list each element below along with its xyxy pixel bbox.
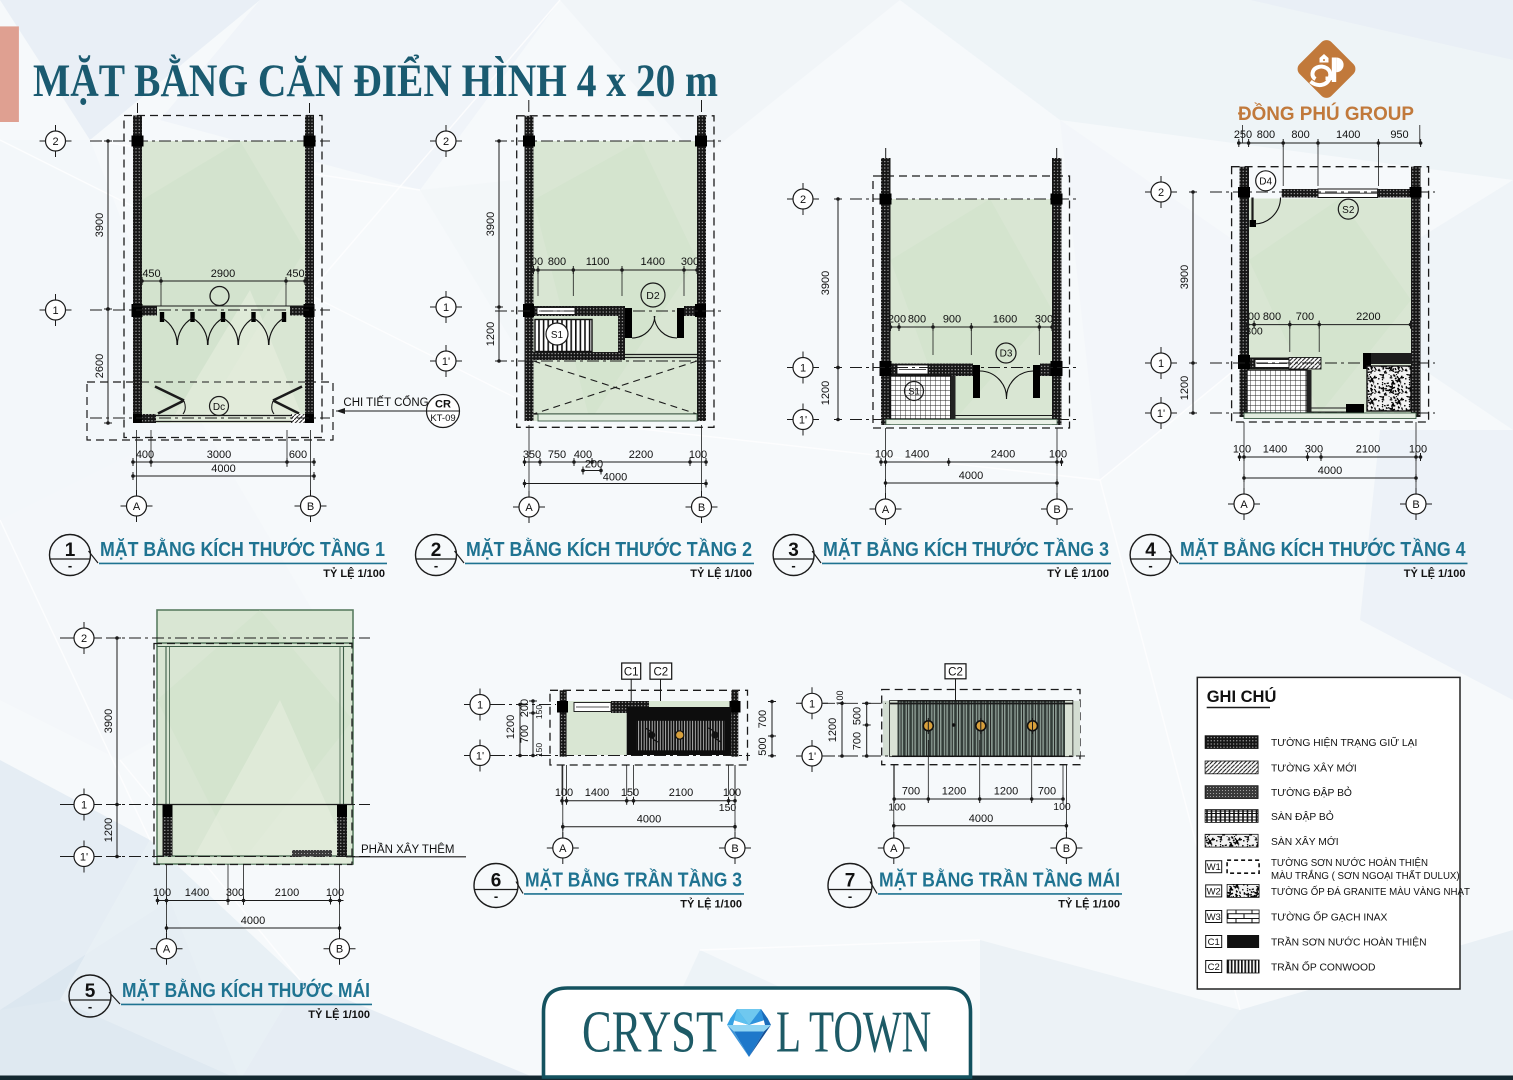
svg-text:700: 700 (1038, 786, 1056, 798)
svg-text:300: 300 (1245, 326, 1263, 338)
svg-text:MẶT BẰNG KÍCH THƯỚC TẦNG 4: MẶT BẰNG KÍCH THƯỚC TẦNG 4 (1180, 537, 1466, 561)
svg-text:4000: 4000 (959, 470, 983, 482)
svg-text:1600: 1600 (993, 314, 1017, 326)
svg-text:350: 350 (523, 449, 541, 461)
svg-text:TƯỜNG HIỆN TRẠNG GIỮ LẠI: TƯỜNG HIỆN TRẠNG GIỮ LẠI (1271, 736, 1417, 749)
svg-text:1200: 1200 (942, 786, 966, 798)
svg-text:-: - (791, 558, 795, 573)
svg-text:A: A (882, 504, 890, 516)
svg-text:MÀU TRẮNG ( SƠN NGOẠI THẤT DUL: MÀU TRẮNG ( SƠN NGOẠI THẤT DULUX) (1271, 871, 1460, 882)
svg-text:TỶ LỆ 1/100: TỶ LỆ 1/100 (1047, 567, 1109, 580)
svg-text:-: - (68, 558, 72, 573)
svg-text:1400: 1400 (585, 787, 609, 799)
svg-text:100: 100 (835, 690, 845, 705)
svg-text:GHI CHÚ: GHI CHÚ (1207, 687, 1277, 706)
svg-text:800: 800 (908, 314, 926, 326)
svg-text:W1: W1 (1207, 862, 1221, 873)
svg-text:4000: 4000 (1318, 465, 1342, 477)
svg-text:1': 1' (799, 414, 807, 426)
svg-text:CR: CR (435, 399, 451, 411)
svg-text:1: 1 (1158, 358, 1164, 370)
svg-text:1200: 1200 (827, 718, 839, 742)
svg-text:2400: 2400 (991, 449, 1015, 461)
svg-text:200: 200 (585, 459, 603, 471)
svg-text:TƯỜNG ĐẬP BỎ: TƯỜNG ĐẬP BỎ (1271, 786, 1352, 799)
svg-text:C1: C1 (624, 667, 639, 679)
svg-text:500: 500 (852, 707, 864, 725)
svg-text:4000: 4000 (241, 915, 265, 927)
svg-text:2900: 2900 (211, 268, 235, 280)
svg-text:500: 500 (757, 737, 769, 755)
svg-text:1': 1' (808, 751, 816, 763)
svg-text:4000: 4000 (637, 814, 661, 826)
svg-text:CRYST: CRYST (582, 1000, 723, 1065)
svg-text:TƯỜNG ỐP GẠCH INAX: TƯỜNG ỐP GẠCH INAX (1271, 910, 1388, 924)
svg-text:1: 1 (800, 362, 806, 374)
svg-text:1400: 1400 (641, 256, 665, 268)
svg-text:200: 200 (519, 699, 531, 717)
svg-text:1100: 1100 (586, 256, 610, 268)
svg-text:1200: 1200 (485, 322, 497, 346)
svg-text:1400: 1400 (185, 887, 209, 899)
svg-text:3900: 3900 (94, 213, 106, 237)
svg-text:TỶ LỆ 1/100: TỶ LỆ 1/100 (1058, 898, 1120, 911)
svg-text:1400: 1400 (1263, 444, 1287, 456)
svg-text:1: 1 (477, 699, 483, 711)
svg-text:B: B (1412, 499, 1419, 511)
svg-text:1200: 1200 (1179, 376, 1191, 400)
svg-text:C2: C2 (948, 667, 963, 679)
svg-text:3900: 3900 (103, 709, 115, 733)
svg-text:PHẦN XÂY THÊM: PHẦN XÂY THÊM (361, 843, 455, 856)
svg-text:100: 100 (723, 787, 741, 799)
svg-text:TRẦN SƠN NƯỚC HOÀN THIỆN: TRẦN SƠN NƯỚC HOÀN THIỆN (1271, 936, 1427, 949)
svg-text:100: 100 (1409, 444, 1427, 456)
svg-text:1400: 1400 (1336, 129, 1360, 141)
svg-text:C1: C1 (1208, 937, 1220, 948)
svg-text:MẶT BẰNG KÍCH THƯỚC TẦNG 1: MẶT BẰNG KÍCH THƯỚC TẦNG 1 (100, 537, 385, 561)
svg-text:TỶ LỆ 1/100: TỶ LỆ 1/100 (680, 898, 742, 911)
svg-text:D4: D4 (1259, 177, 1272, 188)
svg-text:MẶT BẰNG KÍCH THƯỚC TẦNG 2: MẶT BẰNG KÍCH THƯỚC TẦNG 2 (466, 537, 752, 561)
svg-text:MẶT BẰNG KÍCH THƯỚC MÁI: MẶT BẰNG KÍCH THƯỚC MÁI (122, 978, 370, 1002)
svg-text:D2: D2 (646, 290, 660, 302)
svg-text:700: 700 (852, 732, 864, 750)
svg-text:1200: 1200 (994, 786, 1018, 798)
svg-text:A: A (525, 502, 533, 514)
svg-text:B: B (698, 502, 705, 514)
svg-text:300: 300 (1035, 314, 1053, 326)
svg-text:600: 600 (289, 449, 307, 461)
svg-text:100: 100 (326, 887, 344, 899)
svg-text:MẶT BẰNG TRẦN TẦNG 3: MẶT BẰNG TRẦN TẦNG 3 (525, 868, 742, 892)
svg-text:2100: 2100 (1356, 444, 1380, 456)
svg-text:150: 150 (621, 787, 639, 799)
svg-text:100: 100 (153, 887, 171, 899)
svg-text:C2: C2 (1208, 962, 1220, 973)
svg-text:SÀN XÂY MỚI: SÀN XÂY MỚI (1271, 835, 1339, 848)
svg-text:2: 2 (443, 136, 449, 148)
svg-text:2: 2 (81, 633, 87, 645)
svg-text:400: 400 (136, 449, 154, 461)
svg-text:C2: C2 (653, 667, 668, 679)
svg-text:2: 2 (800, 194, 806, 206)
svg-text:TỶ LỆ 1/100: TỶ LỆ 1/100 (1404, 567, 1466, 580)
svg-text:TRẦN ỐP CONWOOD: TRẦN ỐP CONWOOD (1271, 960, 1376, 974)
svg-text:MẶT BẰNG KÍCH THƯỚC TẦNG 3: MẶT BẰNG KÍCH THƯỚC TẦNG 3 (823, 537, 1109, 561)
svg-text:700: 700 (902, 786, 920, 798)
svg-text:100: 100 (1242, 311, 1260, 323)
svg-text:MẶT BẰNG CĂN ĐIỂN HÌNH 4 x 20: MẶT BẰNG CĂN ĐIỂN HÌNH 4 x 20 m (33, 54, 718, 107)
svg-text:-: - (1148, 558, 1152, 573)
svg-text:A: A (1240, 499, 1248, 511)
svg-text:W2: W2 (1207, 886, 1221, 897)
svg-text:B: B (307, 501, 314, 513)
svg-text:3900: 3900 (820, 271, 832, 295)
svg-text:100: 100 (888, 802, 906, 814)
svg-text:1: 1 (809, 698, 815, 710)
svg-text:A: A (559, 843, 567, 855)
svg-text:200: 200 (888, 314, 906, 326)
svg-text:TỶ LỆ 1/100: TỶ LỆ 1/100 (323, 567, 385, 580)
svg-text:1': 1' (476, 750, 484, 762)
svg-text:300: 300 (1305, 444, 1323, 456)
svg-text:450: 450 (286, 268, 304, 280)
svg-text:S2: S2 (1342, 205, 1355, 216)
svg-text:300: 300 (226, 887, 244, 899)
svg-text:2600: 2600 (94, 354, 106, 378)
svg-text:S1: S1 (908, 387, 920, 398)
svg-text:250: 250 (1234, 129, 1252, 141)
svg-text:700: 700 (519, 725, 531, 743)
svg-text:1': 1' (80, 851, 88, 863)
svg-text:3000: 3000 (207, 449, 231, 461)
svg-text:SÀN ĐẬP BỎ: SÀN ĐẬP BỎ (1271, 810, 1334, 823)
svg-text:750: 750 (548, 449, 566, 461)
svg-text:2200: 2200 (1356, 311, 1380, 323)
svg-text:TỶ LỆ 1/100: TỶ LỆ 1/100 (690, 567, 752, 580)
svg-text:1: 1 (52, 305, 58, 317)
svg-text:700: 700 (1296, 311, 1314, 323)
svg-text:A: A (890, 843, 898, 855)
svg-text:150: 150 (719, 802, 737, 814)
svg-text:L TOWN: L TOWN (776, 1000, 931, 1065)
svg-text:2: 2 (52, 136, 58, 148)
svg-text:1200: 1200 (820, 381, 832, 405)
svg-text:900: 900 (943, 314, 961, 326)
svg-text:3900: 3900 (485, 212, 497, 236)
svg-text:A: A (163, 944, 171, 956)
svg-text:Dc: Dc (213, 402, 225, 413)
svg-text:-: - (494, 889, 498, 904)
svg-text:TỶ LỆ 1/100: TỶ LỆ 1/100 (308, 1008, 370, 1021)
svg-text:4000: 4000 (211, 463, 235, 475)
svg-text:MẶT BẰNG TRẦN TẦNG MÁI: MẶT BẰNG TRẦN TẦNG MÁI (879, 868, 1120, 892)
svg-text:1': 1' (442, 356, 450, 368)
svg-text:B: B (1063, 843, 1070, 855)
svg-text:-: - (434, 558, 438, 573)
svg-text:800: 800 (1291, 129, 1309, 141)
svg-text:800: 800 (1257, 129, 1275, 141)
svg-text:-: - (88, 999, 92, 1014)
svg-text:1: 1 (81, 799, 87, 811)
svg-text:800: 800 (1263, 311, 1281, 323)
svg-text:300: 300 (681, 256, 699, 268)
svg-text:B: B (336, 944, 343, 956)
svg-text:B: B (1053, 504, 1060, 516)
svg-text:150: 150 (534, 705, 544, 719)
svg-text:CHI TIẾT CỔNG: CHI TIẾT CỔNG (343, 396, 428, 409)
svg-text:2100: 2100 (275, 887, 299, 899)
svg-text:TƯỜNG SƠN NƯỚC HOÀN THIỆN: TƯỜNG SƠN NƯỚC HOÀN THIỆN (1271, 858, 1428, 869)
svg-text:100: 100 (555, 787, 573, 799)
svg-text:KT-09: KT-09 (430, 413, 455, 424)
svg-text:B: B (731, 843, 738, 855)
svg-text:450: 450 (142, 268, 160, 280)
svg-text:2: 2 (1158, 187, 1164, 199)
svg-text:100: 100 (875, 449, 893, 461)
svg-text:1200: 1200 (103, 818, 115, 842)
svg-text:1': 1' (1157, 408, 1165, 420)
svg-text:ĐỒNG PHÚ GROUP: ĐỒNG PHÚ GROUP (1238, 101, 1414, 125)
svg-text:700: 700 (757, 710, 769, 728)
svg-text:S1: S1 (551, 330, 564, 341)
svg-text:4000: 4000 (969, 813, 993, 825)
svg-text:TƯỜNG XÂY MỚI: TƯỜNG XÂY MỚI (1271, 762, 1357, 775)
svg-text:TƯỜNG ỐP ĐÁ GRANITE MÀU VÀNG N: TƯỜNG ỐP ĐÁ GRANITE MÀU VÀNG NHẠT (1271, 886, 1470, 898)
svg-text:950: 950 (1390, 129, 1408, 141)
svg-text:4000: 4000 (603, 472, 627, 484)
svg-text:3900: 3900 (1179, 265, 1191, 289)
svg-text:1200: 1200 (505, 715, 517, 739)
svg-text:00: 00 (531, 256, 543, 268)
svg-text:A: A (133, 501, 141, 513)
svg-text:100: 100 (689, 449, 707, 461)
svg-text:1: 1 (443, 302, 449, 314)
svg-text:100: 100 (1049, 449, 1067, 461)
svg-text:2200: 2200 (629, 449, 653, 461)
svg-text:800: 800 (548, 256, 566, 268)
svg-text:100: 100 (1053, 801, 1071, 813)
svg-text:2100: 2100 (669, 787, 693, 799)
svg-text:D3: D3 (1000, 349, 1013, 360)
svg-text:150: 150 (534, 743, 544, 757)
svg-text:1400: 1400 (905, 449, 929, 461)
svg-text:W3: W3 (1207, 912, 1221, 923)
svg-text:100: 100 (1233, 444, 1251, 456)
svg-text:-: - (848, 889, 852, 904)
